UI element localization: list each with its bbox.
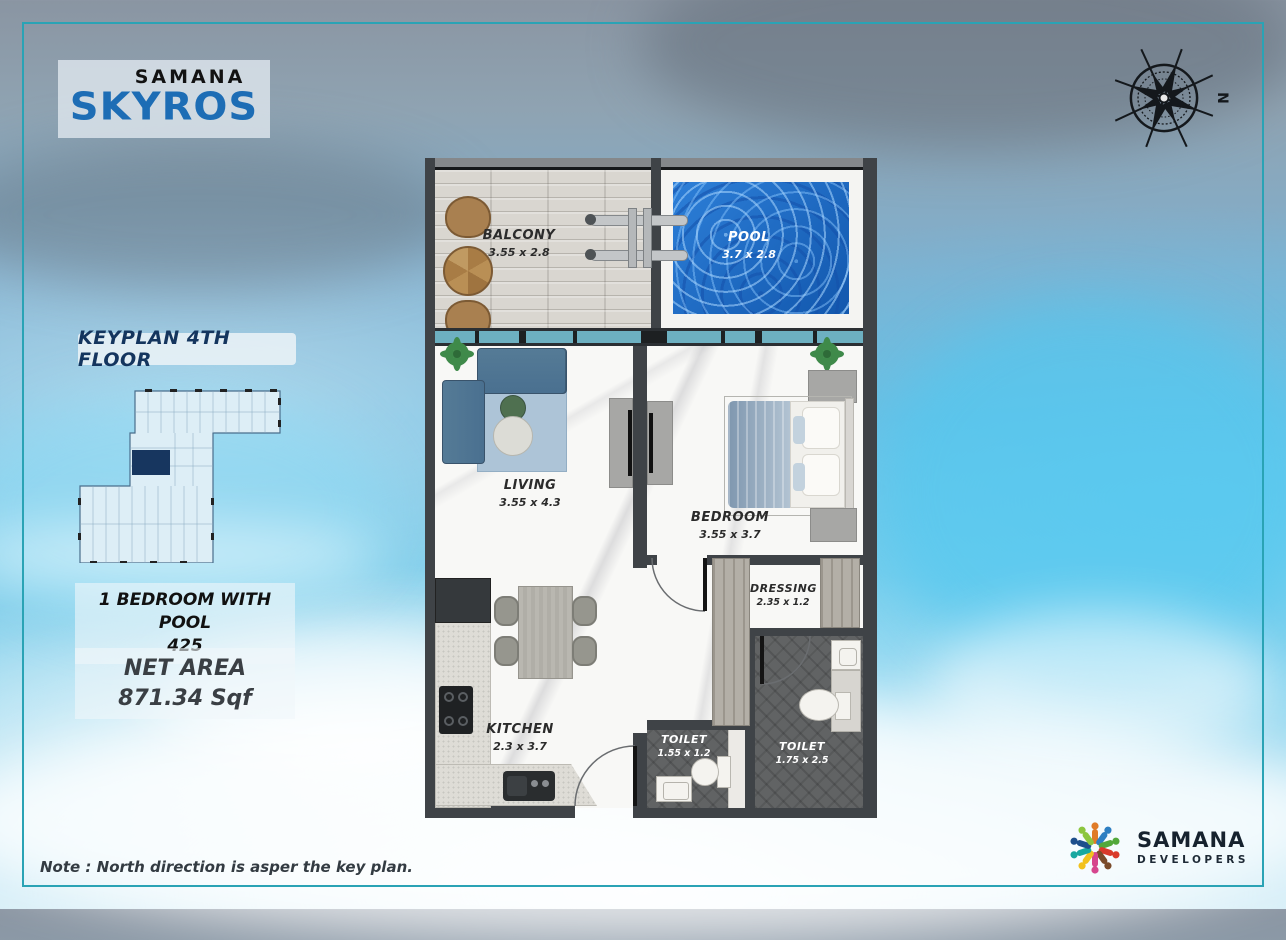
balcony-dims: 3.55 x 2.8 xyxy=(469,246,569,259)
pool-name: POOL xyxy=(699,230,799,245)
developer-logo: SAMANA DEVELOPERS xyxy=(1063,816,1249,880)
net-area-value: 871.34 Sqf xyxy=(75,684,295,714)
note-text: Note : North direction is asper the key … xyxy=(40,858,413,876)
developer-name: SAMANA xyxy=(1137,830,1249,851)
brand-skyros-text: SKYROS xyxy=(58,89,270,125)
kitchen-dims: 2.3 x 3.7 xyxy=(460,740,580,753)
toilet-main-dims: 1.75 x 2.5 xyxy=(767,755,837,766)
compass-rose-icon: N xyxy=(1112,36,1222,156)
living-dims: 3.55 x 4.3 xyxy=(470,496,590,509)
dressing-label: DRESSING 2.35 x 1.2 xyxy=(750,582,816,608)
developer-people-icon xyxy=(1063,816,1127,880)
compass-north-label: N xyxy=(1214,92,1230,104)
bedroom-dims: 3.55 x 3.7 xyxy=(670,528,790,541)
living-name: LIVING xyxy=(470,478,590,493)
unit-type-line1: 1 BEDROOM WITH POOL xyxy=(75,589,295,635)
keyplan-highlighted-unit xyxy=(132,450,170,475)
developer-subtitle: DEVELOPERS xyxy=(1137,854,1249,866)
balcony-name: BALCONY xyxy=(469,228,569,243)
toilet-main-name: TOILET xyxy=(767,740,837,753)
pool-dims: 3.7 x 2.8 xyxy=(699,248,799,261)
pool-label: POOL 3.7 x 2.8 xyxy=(699,230,799,261)
net-area-box: NET AREA 871.34 Sqf xyxy=(75,648,295,719)
net-area-label: NET AREA xyxy=(75,654,295,684)
keyplan-title: KEYPLAN 4TH FLOOR xyxy=(78,333,296,365)
toilet-small-name: TOILET xyxy=(653,733,715,746)
living-label: LIVING 3.55 x 4.3 xyxy=(470,478,590,509)
cloud xyxy=(0,140,460,290)
kitchen-name: KITCHEN xyxy=(460,722,580,737)
brand-logo: SAMANA SKYROS xyxy=(58,60,270,138)
keyplan-map xyxy=(75,378,290,567)
toilet-small-label: TOILET 1.55 x 1.2 xyxy=(653,733,715,759)
bedroom-label: BEDROOM 3.55 x 3.7 xyxy=(670,510,790,541)
cloud xyxy=(930,610,1270,760)
dressing-name: DRESSING xyxy=(750,582,816,595)
kitchen-label: KITCHEN 2.3 x 3.7 xyxy=(460,722,580,753)
cloud xyxy=(880,300,1286,680)
balcony-label: BALCONY 3.55 x 2.8 xyxy=(469,228,569,259)
toilet-main-label: TOILET 1.75 x 2.5 xyxy=(767,740,837,766)
floor-plan: BALCONY 3.55 x 2.8 POOL 3.7 x 2.8 LIVING… xyxy=(425,158,877,818)
dressing-dims: 2.35 x 1.2 xyxy=(750,597,816,608)
toilet-small-dims: 1.55 x 1.2 xyxy=(653,748,715,759)
keyplan-svg xyxy=(75,378,290,563)
compass-svg xyxy=(1112,36,1222,156)
bedroom-name: BEDROOM xyxy=(670,510,790,525)
